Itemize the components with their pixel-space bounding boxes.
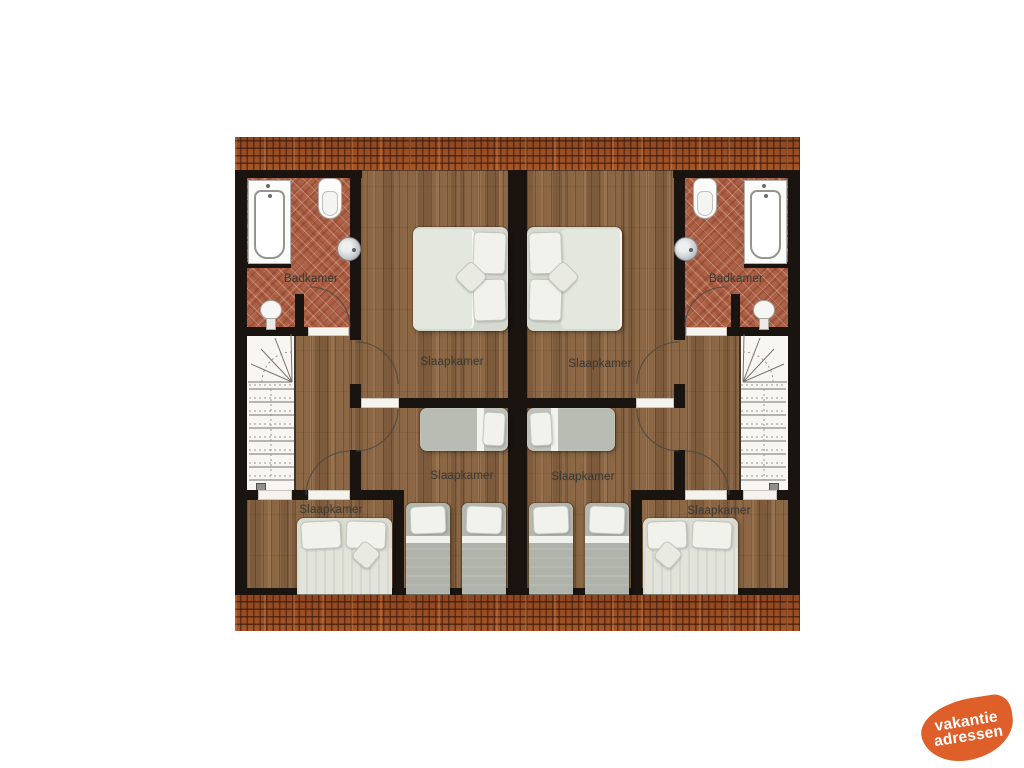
bathtub-tap <box>762 184 766 188</box>
room-label-slaapkamer-master-right: Slaapkamer <box>550 358 650 372</box>
room-label-badkamer-left: Badkamer <box>261 273 361 287</box>
pillow <box>482 411 506 446</box>
duvet <box>529 543 573 595</box>
pillow <box>533 505 570 534</box>
bathtub-drain <box>268 194 272 198</box>
pillow <box>529 411 553 446</box>
room-label-slaapkamer-middle-left: Slaapkamer <box>412 470 512 484</box>
roof-tiles-bottom <box>235 595 800 631</box>
room-label-slaapkamer-bottom-left: Slaapkamer <box>281 504 381 518</box>
room-label-slaapkamer-middle-right: Slaapkamer <box>533 471 633 485</box>
washbasin-bowl <box>753 300 775 320</box>
floor-plan: Badkamer Badkamer Slaapkamer Slaapkamer … <box>235 137 800 631</box>
vakantieadressen-logo: vakantie adressen <box>916 692 1018 766</box>
bathtub-right <box>744 180 787 264</box>
sheet-fold <box>529 536 573 543</box>
toilet-right <box>693 178 717 219</box>
toilet-left <box>318 178 342 219</box>
room-label-badkamer-right: Badkamer <box>686 273 786 287</box>
pillow <box>300 520 341 550</box>
single-bed <box>585 503 629 595</box>
washbasin-bowl <box>260 300 282 320</box>
sink-left <box>337 237 361 261</box>
single-bed-middle-right <box>527 408 615 451</box>
washbasin-pedestal <box>266 318 276 330</box>
room-label-slaapkamer-bottom-right: Slaapkamer <box>669 505 769 519</box>
duvet <box>406 543 450 595</box>
single-bed <box>406 503 450 595</box>
sheet-fold <box>585 536 629 543</box>
logo-blob: vakantie adressen <box>917 692 1018 767</box>
double-bed-master-left <box>413 227 508 331</box>
toilet-bowl <box>697 191 713 216</box>
bathtub-left <box>248 180 291 264</box>
duvet <box>556 409 614 450</box>
bathtub-basin <box>750 190 781 259</box>
toilet-bowl <box>322 191 338 216</box>
duvet <box>462 543 506 595</box>
sheet-fold <box>406 536 450 543</box>
bathtub-drain <box>764 194 768 198</box>
duvet <box>421 409 479 450</box>
washbasin-right <box>751 300 777 333</box>
double-bed-bottom-right <box>643 518 738 595</box>
bathtub-tap <box>266 184 270 188</box>
pillow <box>589 505 626 534</box>
roof-tiles-top <box>235 137 800 170</box>
single-bed <box>529 503 573 595</box>
sink-drain <box>352 248 356 252</box>
washbasin-pedestal <box>759 318 769 330</box>
single-bed <box>462 503 506 595</box>
bathtub-basin <box>254 190 285 259</box>
pillow <box>691 520 732 550</box>
single-bed-middle-left <box>420 408 508 451</box>
page: Badkamer Badkamer Slaapkamer Slaapkamer … <box>0 0 1024 768</box>
pillow <box>466 505 503 534</box>
room-label-slaapkamer-master-left: Slaapkamer <box>402 356 502 370</box>
sink-right <box>674 237 698 261</box>
pillow <box>410 505 447 534</box>
double-bed-bottom-left <box>297 518 392 595</box>
duvet <box>585 543 629 595</box>
sink-drain <box>689 248 693 252</box>
sheet-fold <box>462 536 506 543</box>
double-bed-master-right <box>527 227 622 331</box>
washbasin-left <box>258 300 284 333</box>
